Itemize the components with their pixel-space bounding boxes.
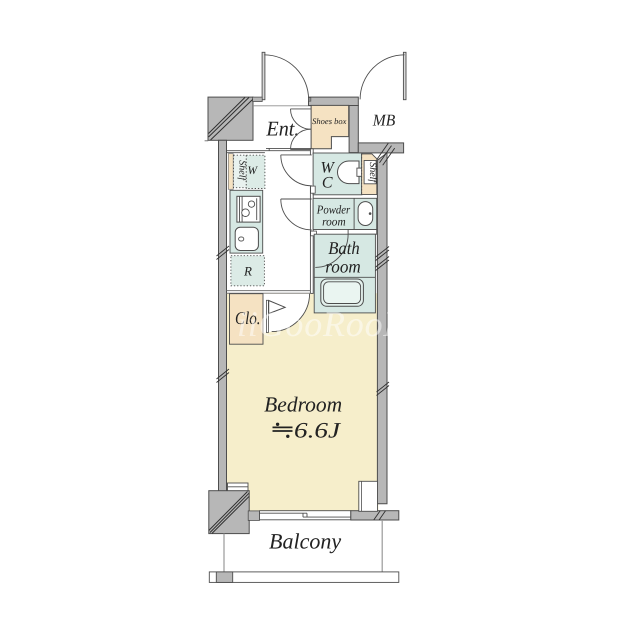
svg-text:MB: MB	[372, 110, 395, 129]
svg-text:iiGooRooM: iiGooRooM	[237, 304, 415, 344]
svg-text:Balcony: Balcony	[269, 529, 341, 554]
svg-text:R: R	[243, 264, 252, 279]
svg-text:C: C	[322, 175, 333, 192]
svg-text:Bath: Bath	[328, 238, 360, 258]
svg-text:Shelf: Shelf	[367, 162, 378, 183]
svg-text:Shoes box: Shoes box	[312, 116, 346, 126]
svg-text:room: room	[322, 215, 346, 229]
svg-text:6.6J: 6.6J	[294, 418, 342, 443]
svg-text:W: W	[248, 165, 259, 177]
svg-text:Ent.: Ent.	[265, 116, 299, 140]
svg-text:Bedroom: Bedroom	[264, 393, 342, 417]
svg-text:room: room	[325, 256, 361, 276]
